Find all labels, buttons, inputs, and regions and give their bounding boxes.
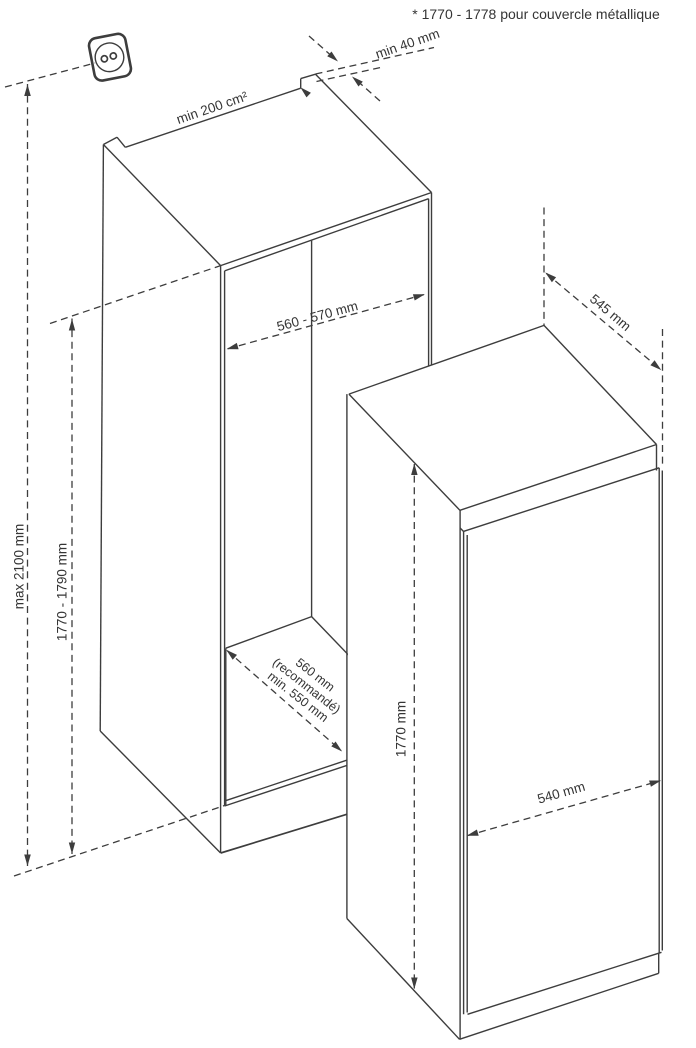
svg-text:* 1770 - 1778 pour couvercle m: * 1770 - 1778 pour couvercle métallique [412, 6, 660, 22]
svg-text:max 2100 mm: max 2100 mm [12, 524, 27, 610]
svg-text:1770 mm: 1770 mm [394, 701, 409, 757]
svg-text:1770 - 1790 mm: 1770 - 1790 mm [55, 543, 70, 641]
